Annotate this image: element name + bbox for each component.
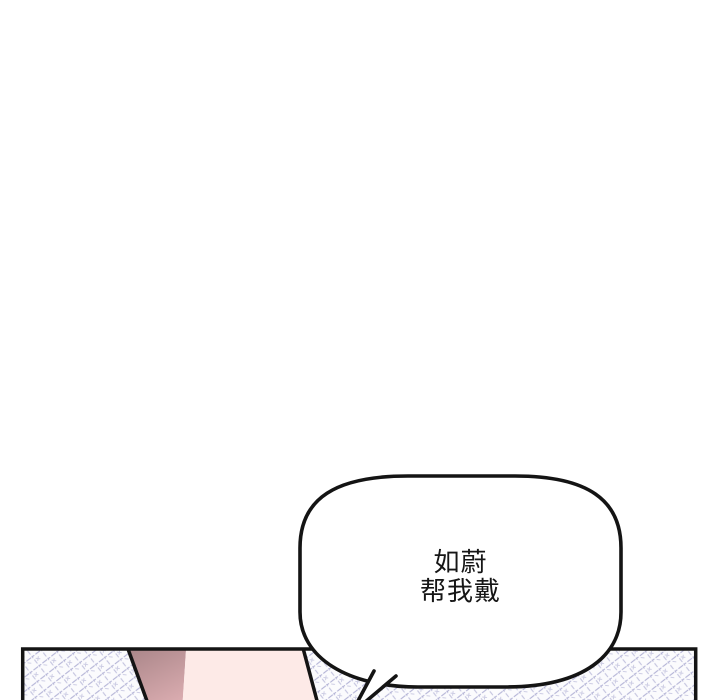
speech-bubble-text: 如蔚 帮我戴 xyxy=(300,549,621,607)
arm-shape xyxy=(182,650,320,700)
comic-page: 如蔚 帮我戴 xyxy=(0,0,720,700)
speech-line-1: 如蔚 xyxy=(300,549,621,578)
speech-line-2: 帮我戴 xyxy=(300,578,621,607)
